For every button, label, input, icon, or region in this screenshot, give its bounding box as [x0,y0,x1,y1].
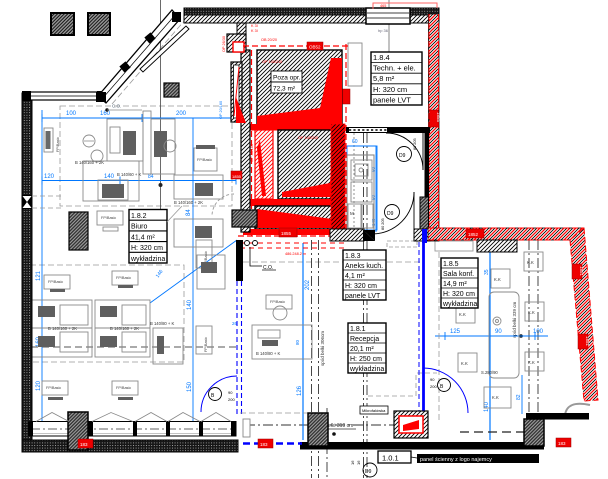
svg-text:Poza opr.: Poza opr. [273,75,301,82]
svg-text:D9: D9 [399,153,406,159]
svg-text:K.K: K.K [527,260,534,265]
svg-text:wykładzina: wykładzina [130,256,165,263]
svg-text:K.K: K.K [494,277,501,282]
svg-text:1.8.2: 1.8.2 [131,213,147,220]
svg-text:1.8.3: 1.8.3 [345,253,361,260]
svg-text:OB52: OB52 [309,45,321,50]
svg-text:H: 320 cm: H: 320 cm [443,291,475,298]
svg-text:K 3l: K 3l [251,29,258,33]
svg-text:202: 202 [305,279,311,290]
svg-text:FP/Basic: FP/Basic [46,386,61,390]
svg-text:FP/Basic: FP/Basic [197,158,212,162]
svg-text:1851: 1851 [579,266,584,277]
svg-text:160: 160 [100,111,111,117]
svg-text:Mikrofalówka: Mikrofalówka [362,408,386,413]
svg-text:120: 120 [44,174,55,180]
svg-text:140: 140 [104,174,115,180]
svg-text:H: 320 cm: H: 320 cm [131,245,163,252]
svg-text:100: 100 [66,111,77,117]
svg-text:B 140/60 + K: B 140/60 + K [117,172,142,177]
svg-text:60: 60 [352,139,358,145]
svg-text:Techn. + ele.: Techn. + ele. [373,64,416,73]
svg-text:200: 200 [430,384,437,389]
svg-text:20,1 m²: 20,1 m² [350,346,374,353]
svg-text:OP 140/210: OP 140/210 [262,60,282,64]
svg-text:H: 320 cm: H: 320 cm [373,85,407,94]
svg-text:1855: 1855 [281,231,292,236]
svg-text:82: 82 [516,394,522,400]
svg-text:90: 90 [430,377,435,382]
svg-text:spód belki 339 cm: spód belki 339 cm [512,301,517,338]
svg-text:90: 90 [495,329,502,335]
svg-text:FP/Basic: FP/Basic [116,386,131,390]
svg-text:84: 84 [148,174,154,180]
svg-text:1851: 1851 [585,336,590,347]
svg-text:S.280/90: S.280/90 [481,370,498,375]
svg-text:100: 100 [533,329,544,335]
svg-text:C.O.: C.O. [112,104,121,109]
svg-text:K.K: K.K [528,360,535,365]
svg-text:1.8.1: 1.8.1 [350,326,366,333]
svg-text:35: 35 [484,269,490,275]
svg-text:wykładzina: wykładzina [349,366,384,373]
svg-text:1.0.1: 1.0.1 [382,454,399,463]
svg-text:41,4 m²: 41,4 m² [131,234,155,241]
svg-text:183: 183 [558,441,566,446]
svg-text:200: 200 [176,111,187,117]
svg-text:B 140/160 + 2K: B 140/160 + 2K [110,326,139,331]
svg-text:FP/Basic: FP/Basic [101,216,116,220]
svg-text:OP 26/30: OP 26/30 [222,36,226,52]
svg-text:B 140/80 + K: B 140/80 + K [256,351,281,356]
svg-text:M: M [350,211,354,216]
svg-text:1855: 1855 [436,112,441,123]
svg-text:FP/Basic: FP/Basic [56,137,60,152]
svg-text:OP 140/210: OP 140/210 [298,136,318,140]
svg-text:486.248.2 m: 486.248.2 m [285,252,306,256]
svg-text:121: 121 [36,270,42,281]
svg-text:H: 250 cm: H: 250 cm [350,356,382,363]
svg-text:FP/Basic: FP/Basic [270,300,285,304]
svg-text:80: 80 [295,339,300,345]
svg-text:B 140/160 + 2K: B 140/160 + 2K [48,326,77,331]
svg-text:K.K: K.K [459,312,466,317]
svg-text:Aneks kuch.: Aneks kuch. [345,263,383,270]
svg-text:120: 120 [36,380,42,391]
svg-text:panele LVT: panele LVT [345,293,381,300]
svg-text:panel ścienny z logo najemcy: panel ścienny z logo najemcy [420,457,492,463]
svg-text:FP/Basic: FP/Basic [48,280,63,284]
svg-text:5,8 m²: 5,8 m² [373,74,395,83]
svg-text:1855: 1855 [232,174,242,179]
svg-text:140: 140 [484,401,490,412]
svg-text:126: 126 [297,385,303,396]
svg-text:Recepcja: Recepcja [350,336,379,343]
svg-text:hp 36: hp 36 [378,28,389,33]
svg-text:183: 183 [80,442,88,447]
svg-text:OP 30/160: OP 30/160 [250,144,254,162]
svg-text:K 3l: K 3l [251,24,258,28]
svg-text:H: 320 cm: H: 320 cm [345,283,377,290]
svg-text:465: 465 [380,4,386,8]
svg-text:B 140/160 + 2K: B 140/160 + 2K [174,200,203,205]
svg-text:OP 20/160: OP 20/160 [219,101,223,119]
svg-text:Sala konf.: Sala konf. [443,271,474,278]
svg-text:14,9 m²: 14,9 m² [443,281,467,288]
svg-text:K.K: K.K [461,361,468,366]
svg-text:72,3 m²: 72,3 m² [273,86,296,93]
svg-text:125: 125 [450,329,461,335]
svg-text:84: 84 [186,209,192,216]
svg-text:wykładzina: wykładzina [442,301,477,308]
svg-text:K.K: K.K [492,395,499,400]
svg-text:panele LVT: panele LVT [373,95,411,104]
svg-text:16: 16 [350,460,355,465]
svg-text:B 140/160 + 2K: B 140/160 + 2K [75,160,104,165]
svg-text:4,1 m²: 4,1 m² [345,273,366,280]
svg-text:FP/Basic: FP/Basic [116,276,131,280]
svg-text:spód belki 306cm: spód belki 306cm [320,331,325,366]
svg-text:K.K: K.K [528,310,535,315]
svg-text:FP/Basic: FP/Basic [204,337,208,352]
svg-text:80 205: 80 205 [381,218,385,230]
svg-text:150: 150 [187,381,193,392]
svg-text:200: 200 [228,397,235,402]
svg-text:183: 183 [260,442,268,447]
svg-text:Biuro: Biuro [131,224,147,231]
svg-text:90: 90 [228,390,233,395]
svg-text:16: 16 [356,460,361,465]
svg-text:B 140/80 + K: B 140/80 + K [150,321,175,326]
svg-text:1.8.5: 1.8.5 [443,261,459,268]
svg-text:D9: D9 [387,211,394,217]
svg-text:OB 20/20: OB 20/20 [261,38,277,42]
svg-text:140: 140 [187,299,193,310]
svg-text:80 205: 80 205 [413,138,417,150]
svg-text:1852: 1852 [468,232,479,237]
svg-text:1.8.4: 1.8.4 [373,53,390,62]
svg-text:D9: D9 [365,469,372,475]
